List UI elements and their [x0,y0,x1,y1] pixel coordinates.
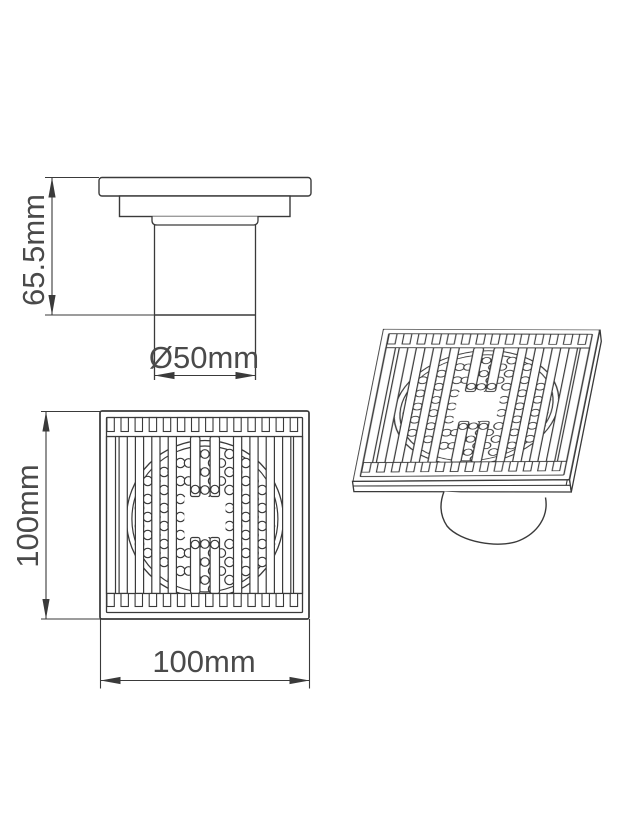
svg-text:65.5mm: 65.5mm [16,194,51,306]
svg-text:Ø50mm: Ø50mm [149,340,259,375]
svg-text:100mm: 100mm [152,644,255,679]
svg-text:100mm: 100mm [10,464,45,567]
